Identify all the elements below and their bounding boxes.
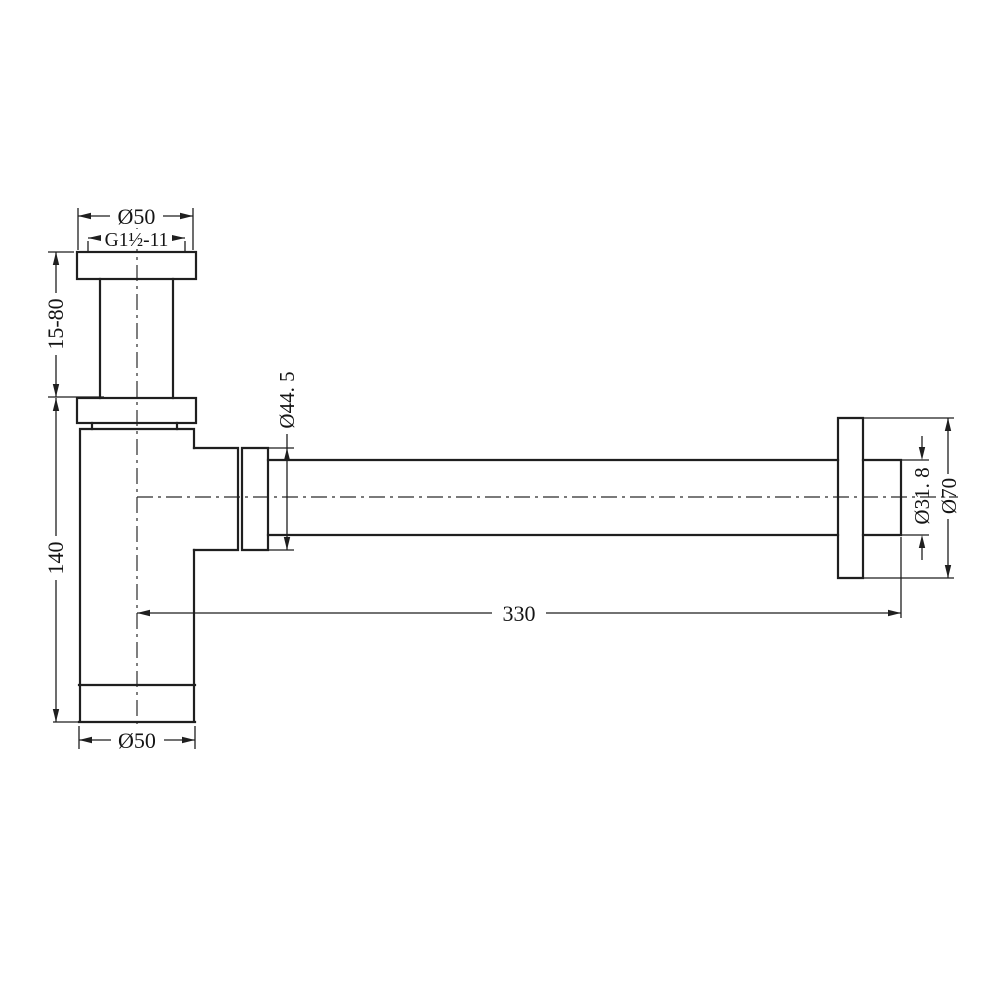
arrow-left-icon <box>79 737 92 743</box>
arrow-up-icon <box>284 448 290 461</box>
technical-drawing-page: Ø50 G1½-11 15-80 140 Ø44. 5 330 <box>0 0 1000 1000</box>
arrow-up-icon <box>53 252 59 265</box>
dim-label-nut-diameter: Ø44. 5 <box>275 371 299 428</box>
dim-label-body-diameter: Ø50 <box>118 728 156 753</box>
arrow-left-icon <box>78 213 91 219</box>
arrow-down-icon <box>284 537 290 550</box>
dim-pipe-diameter: Ø31. 8 <box>901 436 934 560</box>
dim-label-pipe-diameter: Ø31. 8 <box>910 467 934 524</box>
arrow-right-icon <box>182 737 195 743</box>
arrow-left-icon <box>88 235 101 241</box>
arrow-left-icon <box>137 610 150 616</box>
arrow-up-icon <box>53 398 59 411</box>
dim-label-thread: G1½-11 <box>105 230 169 251</box>
dim-body-height: 140 <box>43 398 78 722</box>
outlet-nut <box>242 448 268 550</box>
arrow-down-icon <box>945 565 951 578</box>
arrow-right-icon <box>180 213 193 219</box>
arrow-right-icon <box>888 610 901 616</box>
dim-label-outlet-length: 330 <box>503 601 536 626</box>
arrow-up-icon <box>919 535 925 548</box>
arrow-right-icon <box>172 235 185 241</box>
dim-body-diameter: Ø50 <box>79 726 195 753</box>
trap-outline <box>77 252 901 722</box>
centerlines <box>137 207 958 750</box>
arrow-down-icon <box>53 709 59 722</box>
dim-nut-diameter: Ø44. 5 <box>268 364 299 550</box>
dim-label-top-diameter: Ø50 <box>118 204 156 229</box>
outlet-stub <box>194 448 238 550</box>
dim-inlet-thread: G1½-11 <box>88 229 185 251</box>
wall-flange <box>838 418 863 578</box>
dim-label-body-height: 140 <box>43 542 68 575</box>
arrow-down-icon <box>919 447 925 460</box>
arrow-up-icon <box>945 418 951 431</box>
arrow-down-icon <box>53 384 59 397</box>
dim-label-wall-flange-diameter: Ø70 <box>937 478 961 514</box>
dim-label-inlet-height: 15-80 <box>43 298 68 349</box>
dim-inlet-height: 15-80 <box>43 252 104 397</box>
bottle-trap-drawing: Ø50 G1½-11 15-80 140 Ø44. 5 330 <box>0 0 1000 1000</box>
